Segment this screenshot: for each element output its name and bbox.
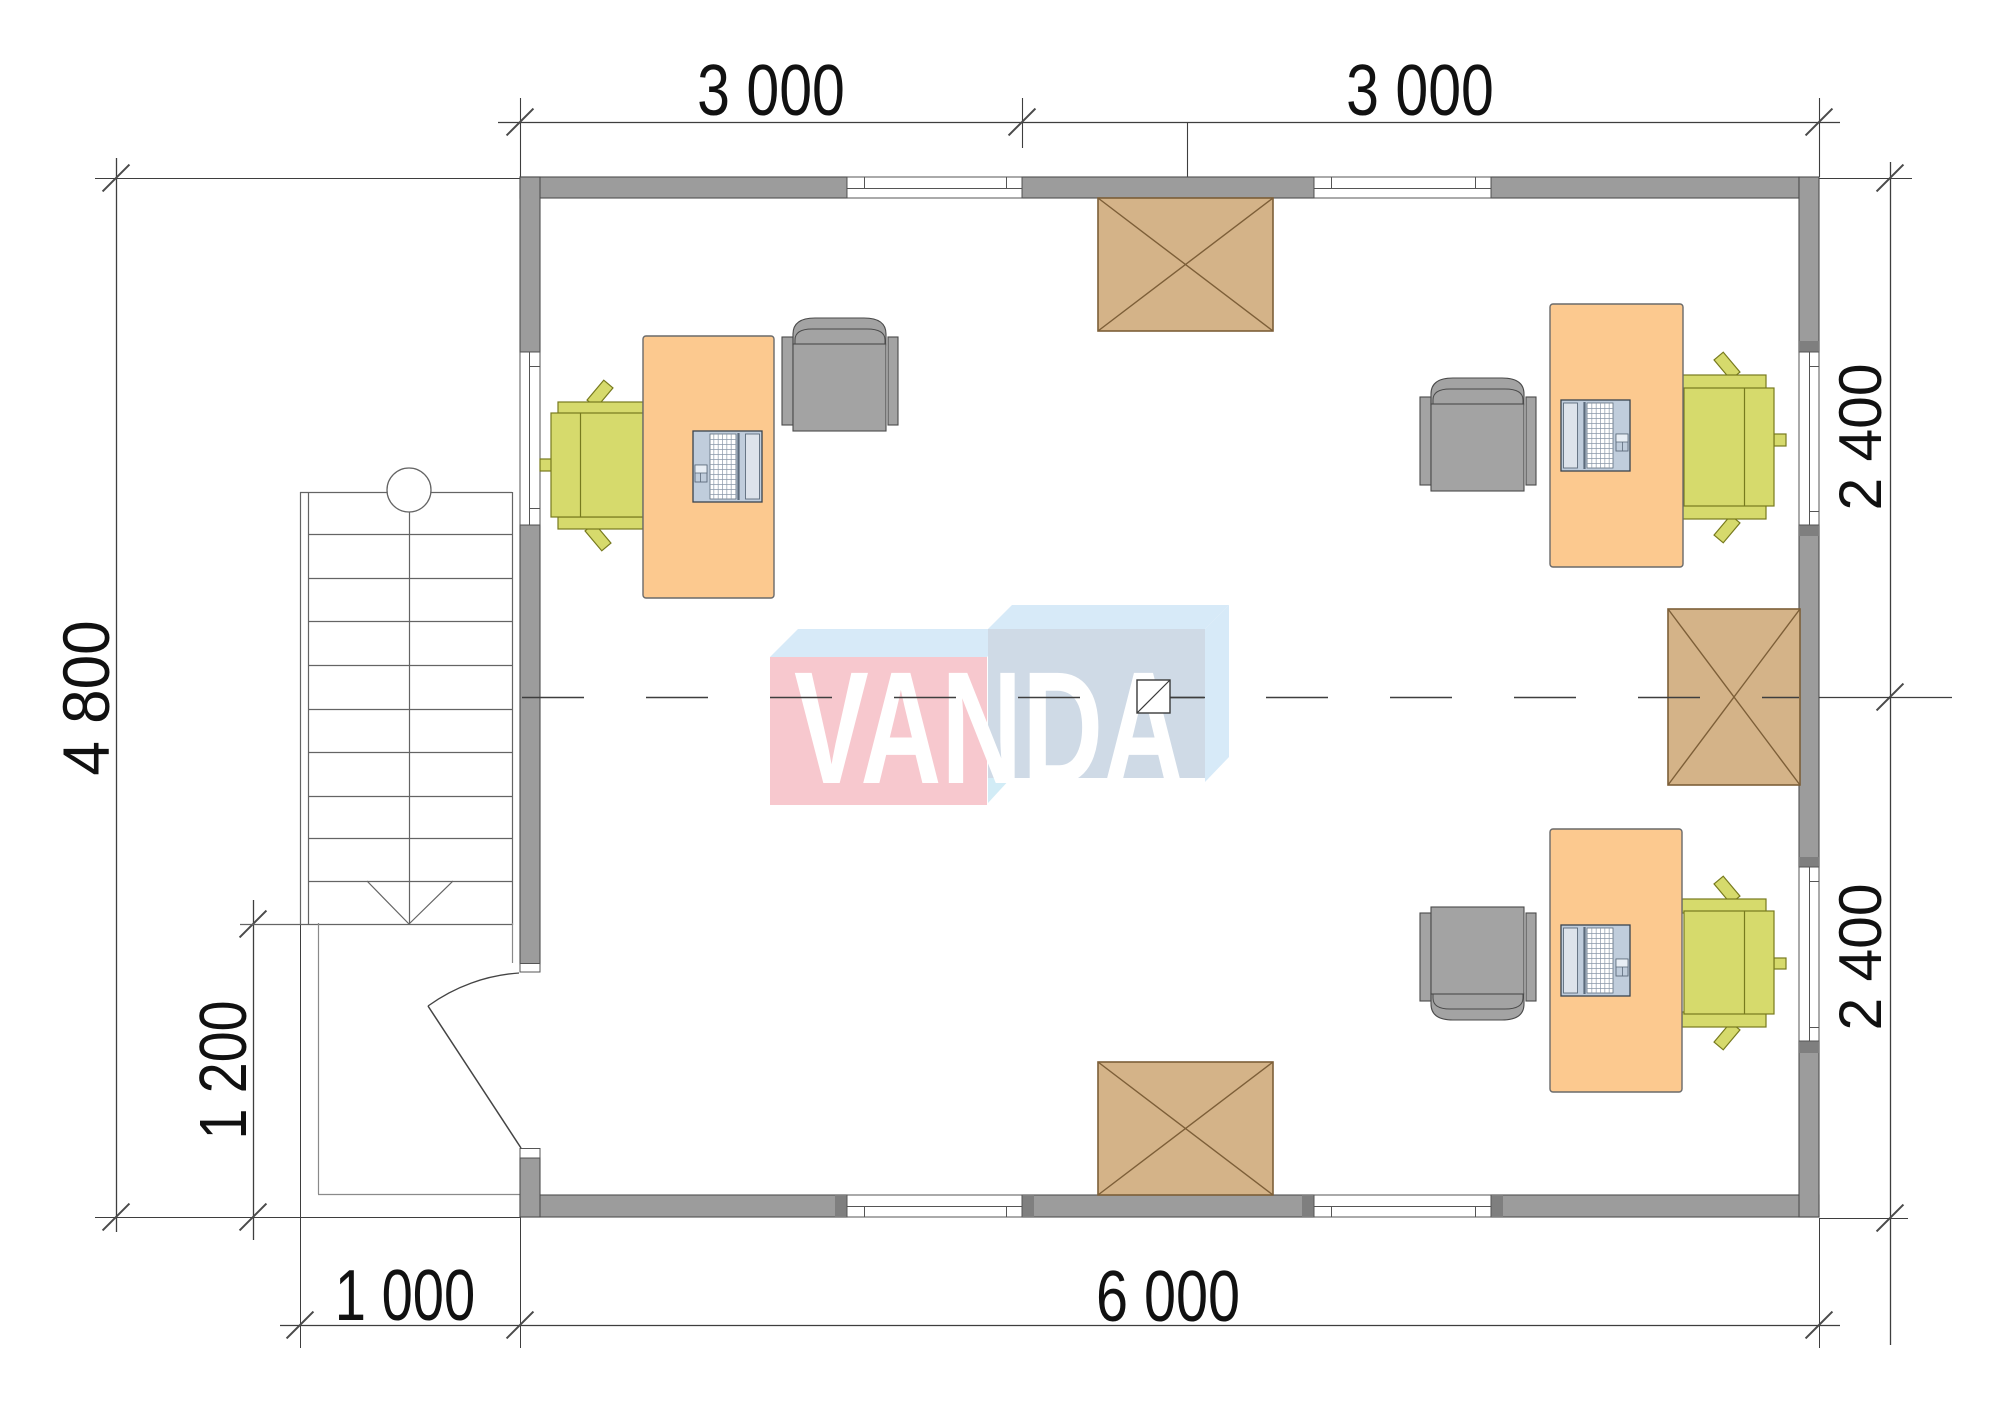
- svg-text:2 400: 2 400: [1826, 883, 1894, 1030]
- svg-text:6 000: 6 000: [1096, 1256, 1240, 1337]
- svg-text:VANDA: VANDA: [794, 639, 1184, 817]
- svg-text:3 000: 3 000: [1346, 49, 1494, 130]
- svg-text:2 400: 2 400: [1826, 363, 1894, 510]
- svg-text:3 000: 3 000: [697, 49, 845, 130]
- svg-text:4 800: 4 800: [49, 620, 123, 775]
- svg-text:1 200: 1 200: [186, 1000, 261, 1139]
- svg-text:1 000: 1 000: [335, 1255, 475, 1335]
